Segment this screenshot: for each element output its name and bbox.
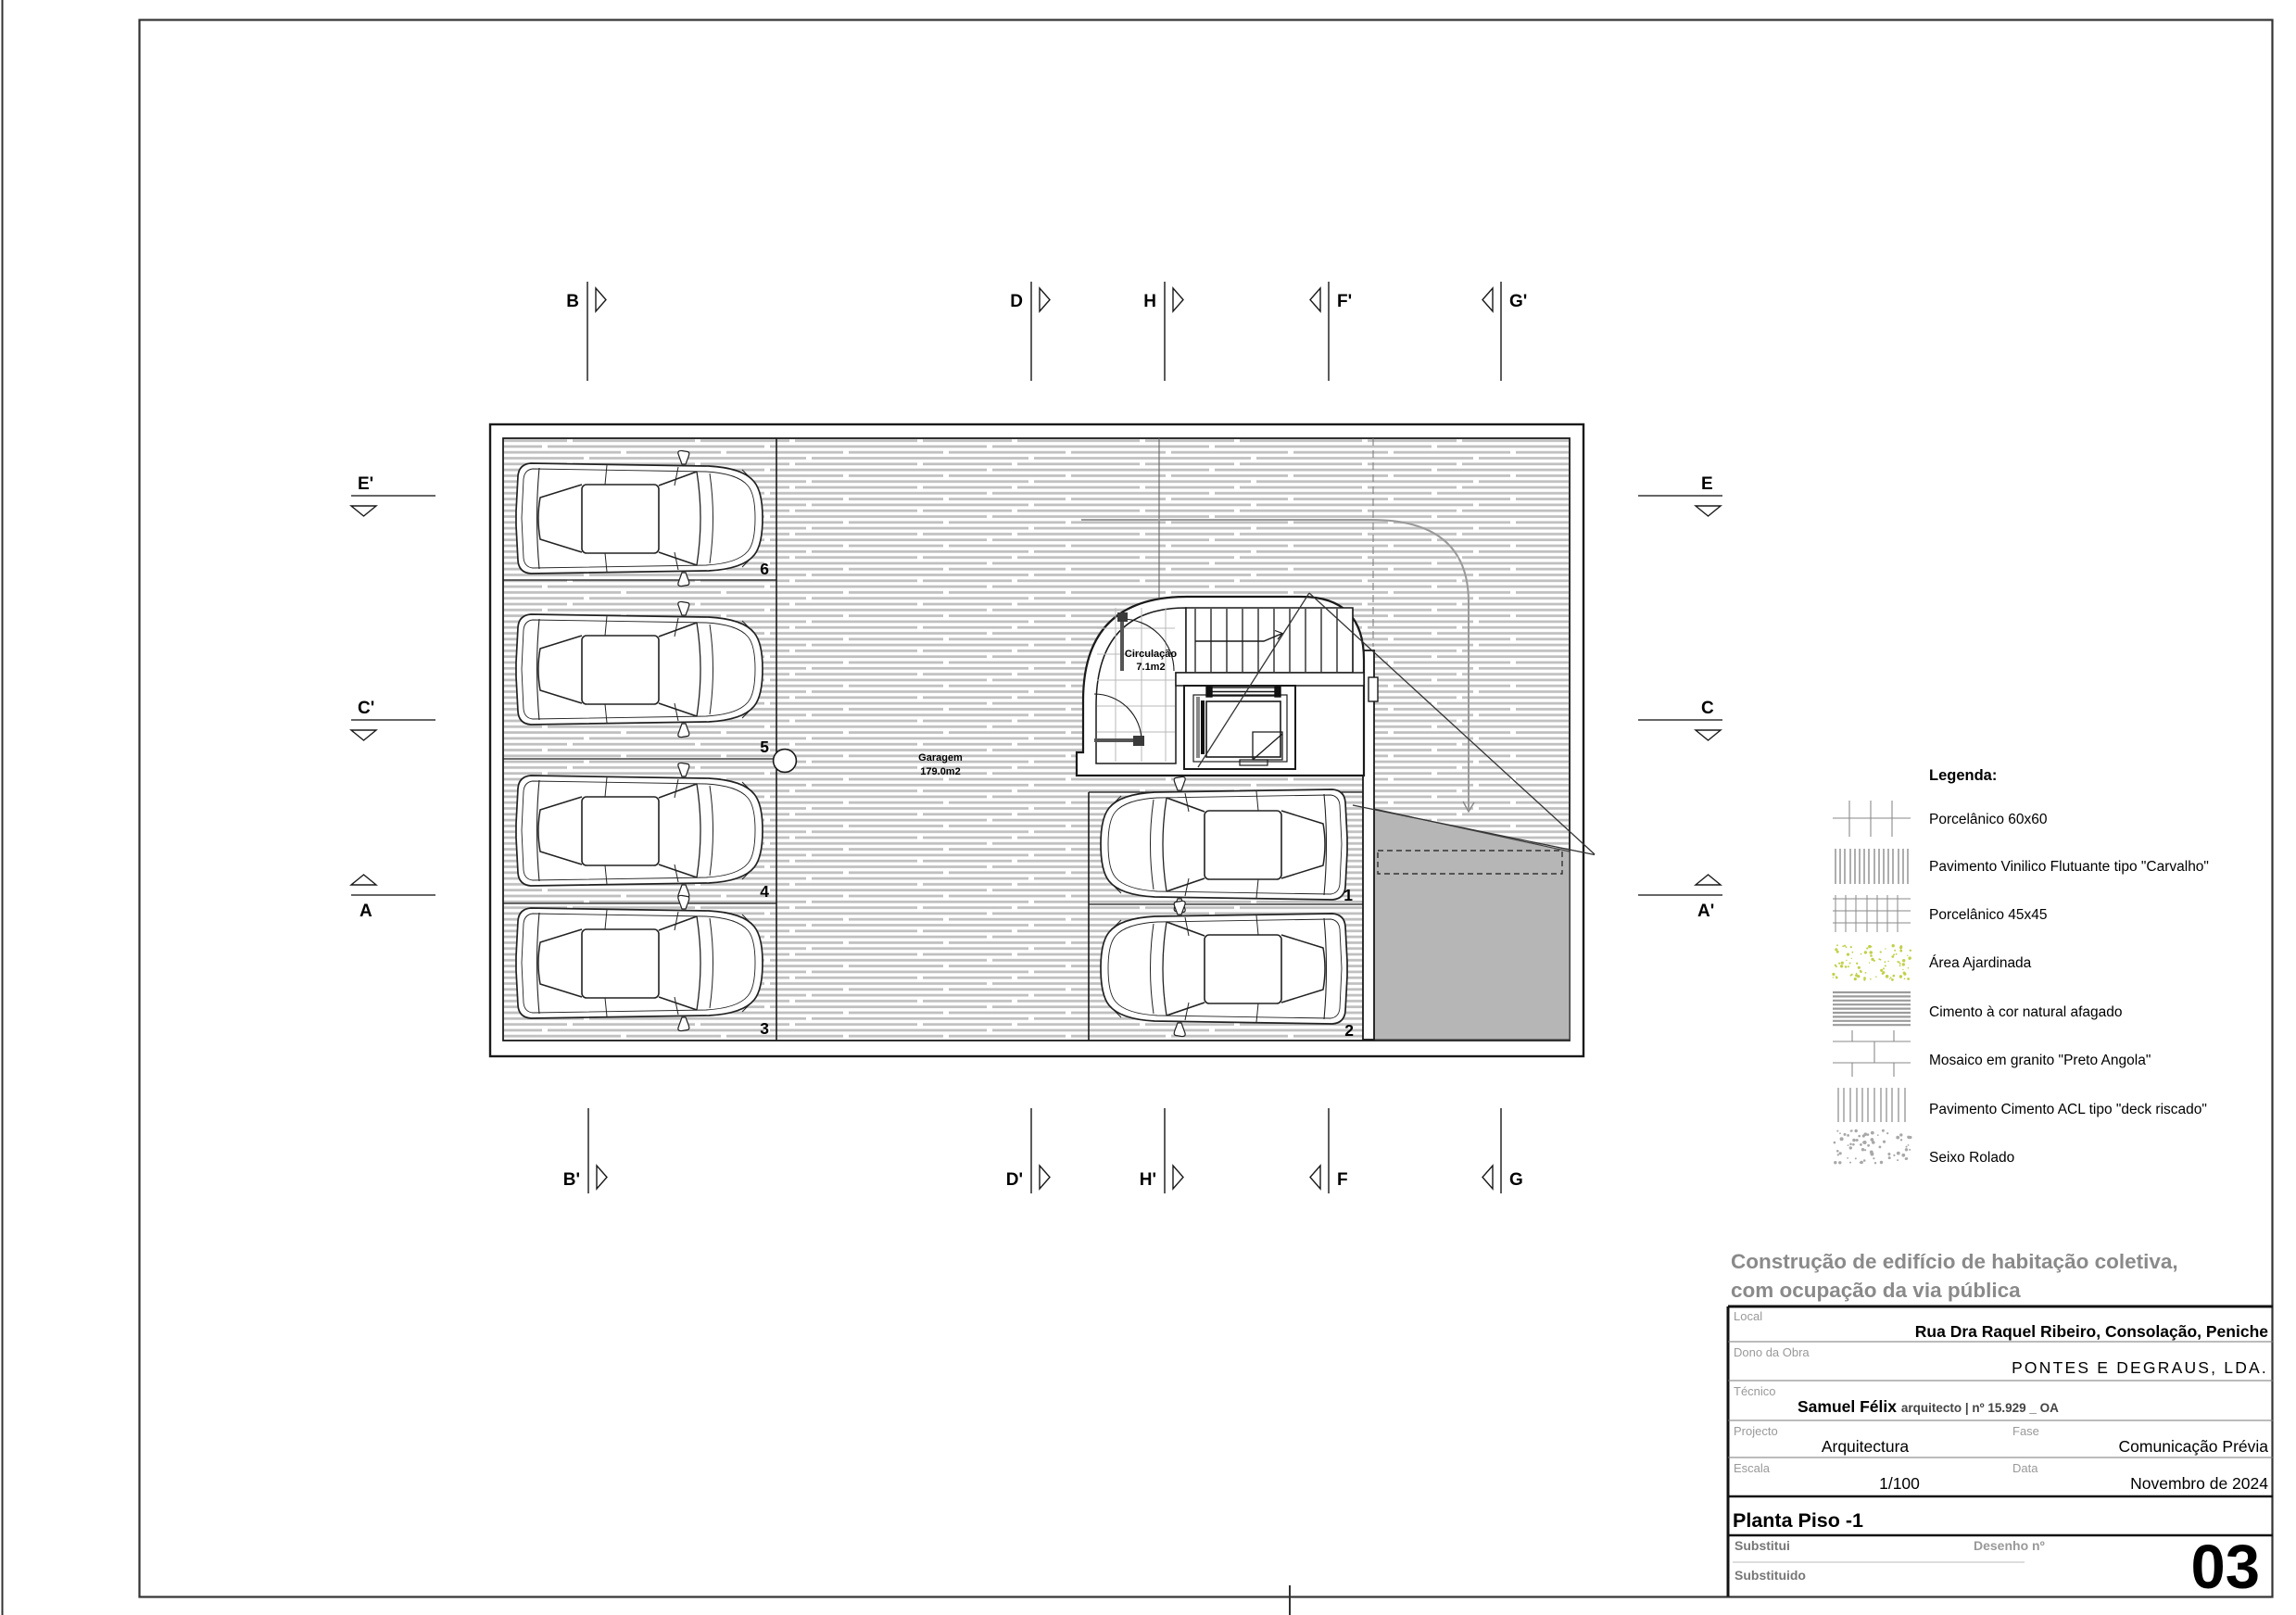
svg-text:B': B' — [563, 1170, 580, 1190]
svg-text:6: 6 — [760, 560, 769, 578]
svg-text:Rua Dra Raquel Ribeiro, Consol: Rua Dra Raquel Ribeiro, Consolação, Peni… — [1915, 1322, 2268, 1341]
svg-text:Projecto: Projecto — [1734, 1424, 1778, 1438]
svg-text:Dono da Obra: Dono da Obra — [1734, 1345, 1810, 1359]
svg-text:F': F' — [1337, 292, 1352, 311]
svg-text:179.0m2: 179.0m2 — [920, 766, 960, 777]
svg-text:Desenho nº: Desenho nº — [1974, 1538, 2045, 1553]
svg-text:Área Ajardinada: Área Ajardinada — [1929, 955, 2032, 971]
svg-text:Data: Data — [2012, 1461, 2038, 1475]
svg-text:Escala: Escala — [1734, 1461, 1771, 1475]
svg-text:F: F — [1337, 1170, 1348, 1190]
svg-text:Planta Piso -1: Planta Piso -1 — [1733, 1509, 1863, 1532]
svg-text:Novembro de 2024: Novembro de 2024 — [2130, 1474, 2268, 1493]
svg-text:com ocupação da via pública: com ocupação da via pública — [1731, 1279, 2021, 1302]
svg-text:Circulação: Circulação — [1125, 649, 1178, 660]
svg-text:B: B — [566, 292, 579, 311]
svg-text:2: 2 — [1344, 1021, 1354, 1040]
svg-text:C: C — [1701, 699, 1714, 718]
svg-text:D: D — [1010, 292, 1023, 311]
svg-text:A': A' — [1697, 902, 1714, 921]
svg-text:G: G — [1509, 1170, 1523, 1190]
svg-text:4: 4 — [760, 882, 769, 901]
svg-text:D': D' — [1006, 1170, 1023, 1190]
svg-text:Samuel Félix arquitecto | nº 1: Samuel Félix arquitecto | nº 15.929 _ OA — [1798, 1397, 2059, 1416]
svg-text:PONTES E DEGRAUS, LDA.: PONTES E DEGRAUS, LDA. — [2012, 1358, 2268, 1377]
svg-text:Substitui: Substitui — [1735, 1538, 1790, 1553]
svg-text:C': C' — [358, 699, 374, 718]
svg-text:H': H' — [1140, 1170, 1156, 1190]
svg-text:1/100: 1/100 — [1879, 1474, 1920, 1493]
svg-text:Garagem: Garagem — [918, 752, 963, 763]
svg-text:03: 03 — [2190, 1533, 2260, 1602]
svg-text:Cimento à cor natural afagado: Cimento à cor natural afagado — [1929, 1004, 2123, 1020]
svg-text:Legenda:: Legenda: — [1929, 767, 1997, 784]
svg-text:Técnico: Técnico — [1734, 1384, 1776, 1398]
svg-text:Porcelânico 60x60: Porcelânico 60x60 — [1929, 812, 2048, 827]
svg-text:Pavimento Vinilico Flutuante t: Pavimento Vinilico Flutuante tipo "Carva… — [1929, 859, 2209, 875]
svg-text:Pavimento Cimento ACL tipo "de: Pavimento Cimento ACL tipo "deck riscado… — [1929, 1102, 2207, 1117]
svg-text:Substituido: Substituido — [1735, 1568, 1806, 1583]
svg-text:H: H — [1143, 292, 1156, 311]
svg-text:G': G' — [1509, 292, 1527, 311]
svg-text:E': E' — [358, 474, 373, 494]
svg-text:Porcelânico 45x45: Porcelânico 45x45 — [1929, 907, 2048, 923]
svg-text:Mosaico em granito "Preto Ango: Mosaico em granito "Preto Angola" — [1929, 1053, 2151, 1068]
svg-text:7.1m2: 7.1m2 — [1136, 662, 1165, 673]
svg-text:Comunicação Prévia: Comunicação Prévia — [2119, 1437, 2269, 1456]
svg-text:1: 1 — [1344, 886, 1353, 904]
svg-text:E: E — [1701, 474, 1713, 494]
svg-text:Local: Local — [1734, 1309, 1762, 1323]
svg-text:Fase: Fase — [2012, 1424, 2039, 1438]
svg-text:Construção de edifício de habi: Construção de edifício de habitação cole… — [1731, 1250, 2178, 1273]
svg-text:3: 3 — [760, 1019, 769, 1038]
svg-text:A: A — [360, 902, 372, 921]
svg-text:5: 5 — [760, 738, 769, 756]
svg-text:Seixo Rolado: Seixo Rolado — [1929, 1150, 2014, 1166]
svg-text:Arquitectura: Arquitectura — [1822, 1437, 1910, 1456]
